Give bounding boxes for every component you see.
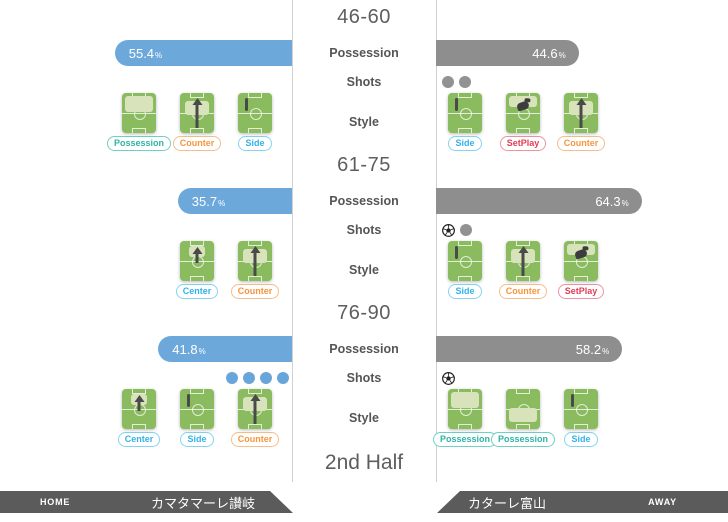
style-card: Possession [436, 389, 494, 447]
style-card: Center [168, 241, 226, 299]
arrow-up-icon [196, 104, 199, 128]
home-possession-bar: 35.7% [178, 188, 292, 214]
away-possession-bar: 44.6% [436, 40, 579, 66]
away-possession-value: 58.2 [576, 342, 601, 357]
shot-marker [442, 76, 454, 88]
style-card: Side [436, 93, 494, 151]
home-team-bar[interactable]: HOME カマタマーレ讃岐 [0, 491, 293, 513]
style-card: Side [552, 389, 610, 447]
style-label: Style [349, 411, 379, 425]
home-style-cards: Center Counter [0, 240, 292, 299]
pitch-card [122, 93, 156, 133]
shot-marker [460, 224, 472, 236]
highlight-zone [451, 392, 479, 408]
pitch-card [238, 241, 272, 281]
home-shots [0, 72, 292, 92]
possession-label: Possession [329, 46, 398, 60]
pitch-card [122, 389, 156, 429]
side-line-icon [455, 98, 458, 111]
arrow-up-icon [522, 252, 525, 276]
pitch-card [564, 241, 598, 281]
percent-sign: % [218, 199, 225, 208]
style-card: Center [110, 389, 168, 447]
pitch-card [238, 93, 272, 133]
pitch-markings [180, 389, 214, 429]
pitch-card [564, 389, 598, 429]
away-shots [436, 220, 728, 240]
soccer-ball-icon [442, 372, 455, 385]
home-possession-value: 41.8 [172, 342, 197, 357]
home-tag: HOME [40, 497, 70, 507]
pitch-card [448, 93, 482, 133]
away-shots [436, 368, 728, 388]
style-card: Side [168, 389, 226, 447]
away-style-cards: Side Counter [436, 240, 728, 299]
shot-marker [226, 372, 238, 384]
shots-label: Shots [347, 371, 382, 385]
possession-label: Possession [329, 194, 398, 208]
percent-sign: % [155, 51, 162, 60]
home-team-name: カマタマーレ讃岐 [151, 493, 255, 512]
period-block: 76-90 41.8% Possession 58.2% [0, 296, 728, 444]
period-title: 46-60 [337, 6, 391, 29]
period-block: 61-75 35.7% Possession 64.3% Shots [0, 148, 728, 296]
home-possession-bar: 41.8% [158, 336, 292, 362]
away-possession-value: 64.3 [595, 194, 620, 209]
pitch-card [448, 241, 482, 281]
away-tag: AWAY [648, 497, 677, 507]
pitch-markings [238, 93, 272, 133]
style-card: Counter [494, 241, 552, 299]
style-card: Counter [226, 241, 284, 299]
pitch-card [238, 389, 272, 429]
pitch-card [506, 241, 540, 281]
arrow-up-icon [254, 400, 257, 424]
away-possession-value: 44.6 [532, 46, 557, 61]
period-block: 46-60 55.4% Possession 44.6% Shots [0, 0, 728, 148]
shot-marker [277, 372, 289, 384]
shot-marker [260, 372, 272, 384]
highlight-zone [125, 96, 153, 112]
arrow-up-icon [196, 253, 199, 263]
home-shots [0, 220, 292, 240]
home-possession-bar: 55.4% [115, 40, 292, 66]
side-line-icon [455, 246, 458, 259]
pitch-card [564, 93, 598, 133]
home-possession-value: 35.7 [192, 194, 217, 209]
shot-marker [459, 76, 471, 88]
away-possession-bar: 58.2% [436, 336, 622, 362]
style-card: SetPlay [494, 93, 552, 151]
style-label: Style [349, 115, 379, 129]
home-shots [0, 368, 292, 388]
side-line-icon [571, 394, 574, 407]
home-style-cards: Center Side [0, 388, 292, 447]
away-team-bar[interactable]: カターレ富山 AWAY [437, 491, 728, 513]
percent-sign: % [559, 51, 566, 60]
pitch-card [506, 93, 540, 133]
style-card: Counter [226, 389, 284, 447]
away-shots [436, 72, 728, 92]
match-stats-screen: 46-60 55.4% Possession 44.6% Shots [0, 0, 728, 522]
percent-sign: % [199, 347, 206, 356]
arrow-up-icon [254, 252, 257, 276]
pitch-markings [448, 241, 482, 281]
shot-marker [442, 224, 455, 237]
possession-label: Possession [329, 342, 398, 356]
shots-label: Shots [347, 223, 382, 237]
away-style-cards: Side SetPlay [436, 92, 728, 151]
style-label: Style [349, 263, 379, 277]
away-team-name: カターレ富山 [468, 493, 546, 512]
period-title: 76-90 [337, 302, 391, 325]
percent-sign: % [622, 199, 629, 208]
pitch-card [180, 389, 214, 429]
shots-label: Shots [347, 75, 382, 89]
away-style-cards: Possession Possession [436, 388, 728, 447]
style-card: Possession [494, 389, 552, 447]
pitch-card [448, 389, 482, 429]
pitch-markings [564, 389, 598, 429]
percent-sign: % [602, 347, 609, 356]
home-possession-value: 55.4 [129, 46, 154, 61]
arrow-up-icon [580, 104, 583, 128]
pitch-card [506, 389, 540, 429]
pitch-card [180, 93, 214, 133]
style-card: Side [436, 241, 494, 299]
pitch-card [180, 241, 214, 281]
arrow-up-icon [138, 401, 141, 411]
shot-marker [243, 372, 255, 384]
soccer-ball-icon [442, 224, 455, 237]
shot-marker [442, 372, 455, 385]
style-card: Possession [110, 93, 168, 151]
style-card: Side [226, 93, 284, 151]
half-title: 2nd Half [325, 451, 403, 475]
side-line-icon [187, 394, 190, 407]
home-style-cards: Possession Counter [0, 92, 292, 151]
pitch-markings [448, 93, 482, 133]
style-card: SetPlay [552, 241, 610, 299]
side-line-icon [245, 98, 248, 111]
style-card: Counter [552, 93, 610, 151]
period-title: 61-75 [337, 154, 391, 177]
style-card: Counter [168, 93, 226, 151]
highlight-zone [509, 408, 537, 422]
away-possession-bar: 64.3% [436, 188, 642, 214]
